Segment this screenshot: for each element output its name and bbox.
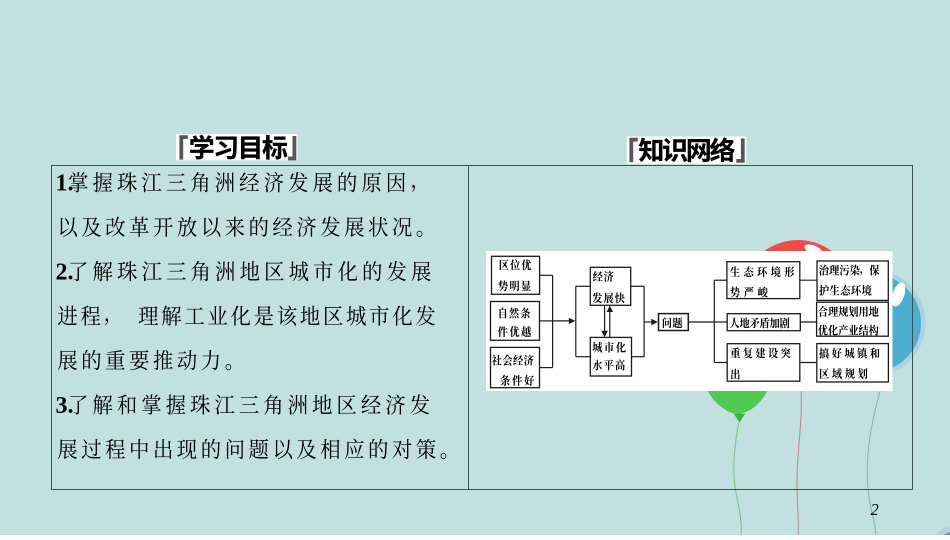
svg-text:1.: 1.	[56, 171, 74, 197]
svg-text:2: 2	[871, 500, 879, 519]
